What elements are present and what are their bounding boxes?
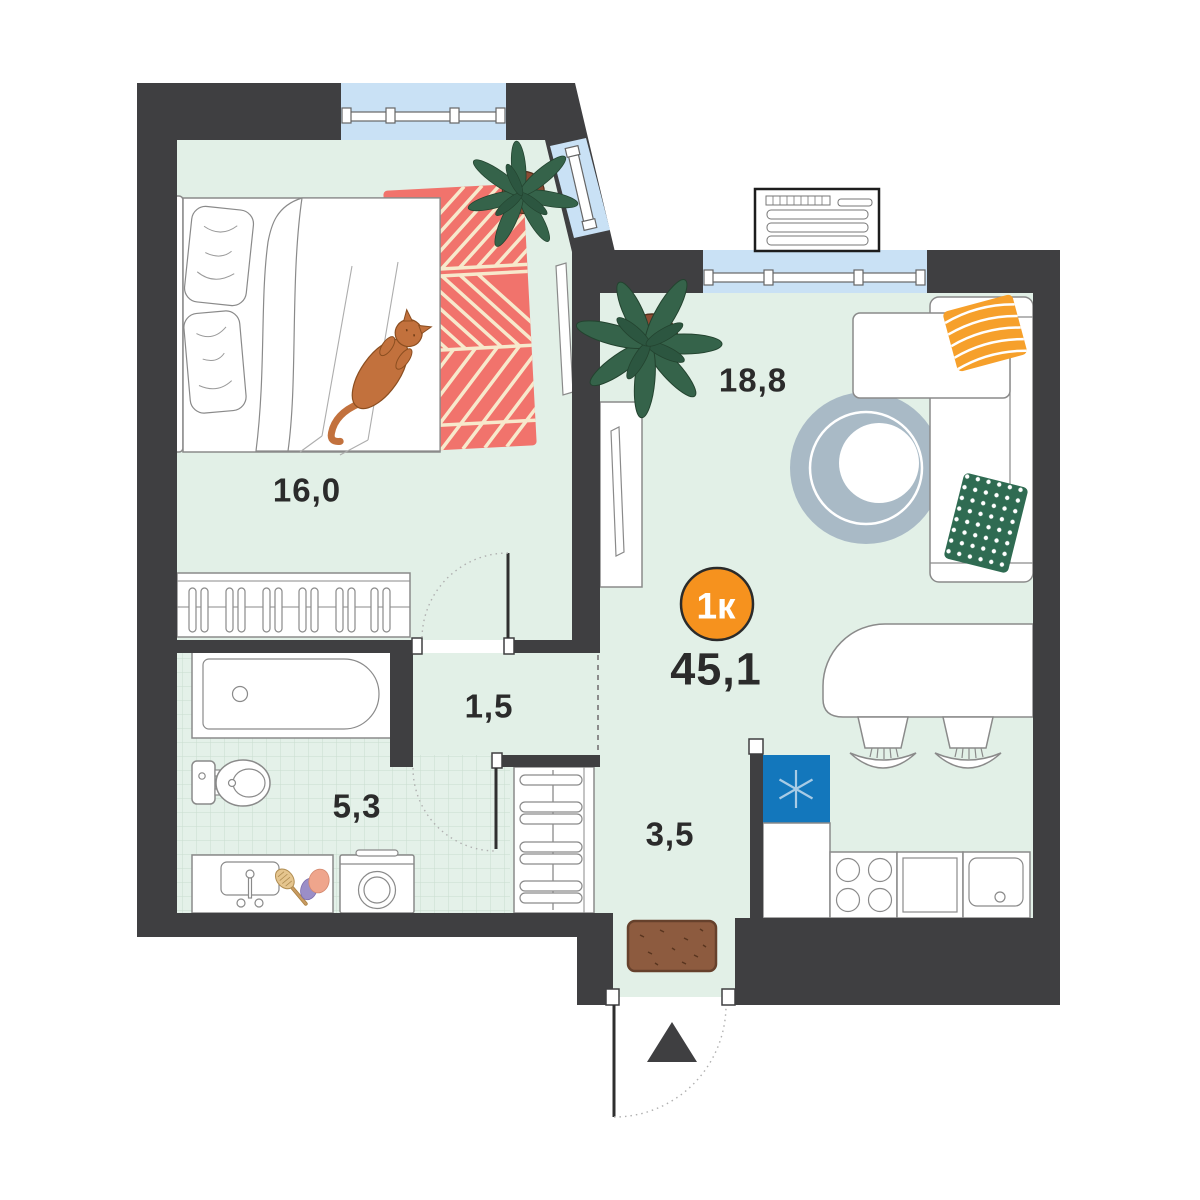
type-badge-label: 1к [696, 586, 736, 627]
hall-closet [514, 767, 594, 913]
hall-area-label: 1,5 [465, 688, 514, 725]
bathroom-area-label: 5,3 [333, 788, 382, 825]
kitchen-counter [897, 852, 963, 918]
bed [169, 196, 440, 455]
total-area-label: 45,1 [670, 644, 762, 695]
bathtub [192, 649, 391, 738]
washing-machine [340, 850, 414, 913]
entry-hall-area-label: 3,5 [646, 816, 695, 853]
up-triangle-icon [647, 1022, 697, 1062]
bedroom-wardrobe [177, 573, 410, 637]
dining-table [823, 624, 1033, 717]
kitchen-cabinet [763, 823, 830, 918]
ac-unit [755, 189, 879, 251]
living-area-label: 18,8 [719, 362, 787, 399]
round-rug [790, 392, 942, 544]
floor-plan: 16,0 18,8 1,5 5,3 3,5 1к 45,1 [0, 0, 1200, 1200]
living-room-window [703, 250, 927, 293]
doormat [628, 921, 716, 971]
floor-plan-svg: 16,0 18,8 1,5 5,3 3,5 1к 45,1 [0, 0, 1200, 1200]
toilet [192, 760, 270, 806]
bedroom-window [341, 83, 506, 140]
kitchen-sink [963, 852, 1030, 918]
pillow [183, 310, 248, 415]
bedroom-area-label: 16,0 [273, 472, 341, 509]
stove [830, 852, 897, 918]
pillow [183, 205, 255, 307]
apartment-type-badge: 1к [681, 568, 753, 640]
tv-unit [600, 402, 642, 587]
